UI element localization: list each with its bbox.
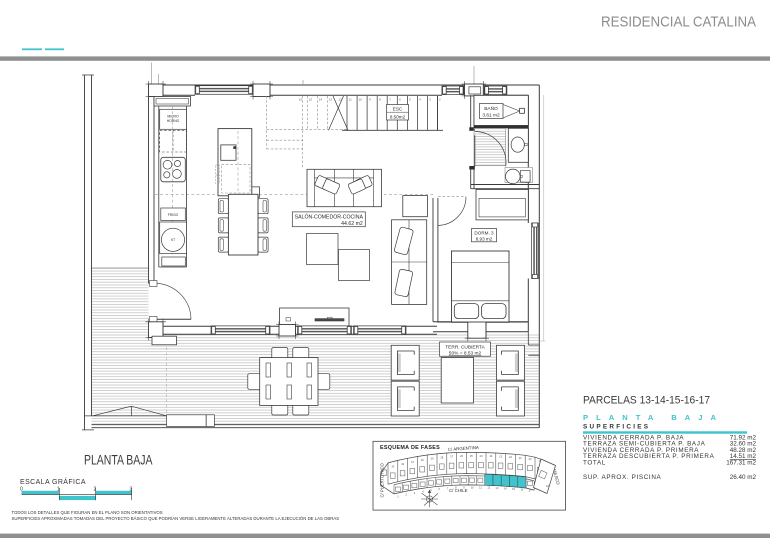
svg-text:FRIGO: FRIGO xyxy=(168,213,179,217)
svg-text:C/ CHILE: C/ CHILE xyxy=(449,488,468,493)
svg-text:8.50m2: 8.50m2 xyxy=(390,114,406,119)
svg-text:2: 2 xyxy=(439,98,441,102)
svg-text:TERR. CUBIERTA: TERR. CUBIERTA xyxy=(445,344,485,350)
svg-text:8.93 m2: 8.93 m2 xyxy=(476,236,493,241)
svg-text:SALÓN-COMEDOR-COCINA: SALÓN-COMEDOR-COCINA xyxy=(295,214,364,221)
svg-text:9: 9 xyxy=(369,98,371,102)
svg-text:PARCELAS 13-14-15-16-17: PARCELAS 13-14-15-16-17 xyxy=(583,395,710,407)
svg-text:16: 16 xyxy=(299,98,303,102)
svg-text:5: 5 xyxy=(409,98,411,102)
svg-text:10: 10 xyxy=(359,98,363,102)
svg-text:167.31 m2: 167.31 m2 xyxy=(726,460,756,467)
svg-text:3.61 m2: 3.61 m2 xyxy=(482,113,500,119)
svg-text:26.40 m2: 26.40 m2 xyxy=(730,474,757,481)
svg-text:50% = 8.53 m2: 50% = 8.53 m2 xyxy=(449,350,482,356)
svg-text:RESIDENCIAL CATALINA: RESIDENCIAL CATALINA xyxy=(601,14,757,31)
svg-text:4: 4 xyxy=(419,98,421,102)
svg-text:SUPERFICIES APROXIMADAS TOMADA: SUPERFICIES APROXIMADAS TOMADAS DEL PROY… xyxy=(12,516,340,521)
svg-text:12: 12 xyxy=(339,98,343,102)
svg-text:ESC: ESC xyxy=(393,107,403,112)
svg-text:ESCALA GRÁFICA: ESCALA GRÁFICA xyxy=(20,477,86,486)
svg-text:TOTAL: TOTAL xyxy=(583,460,606,467)
svg-text:KT: KT xyxy=(171,238,175,242)
svg-text:15: 15 xyxy=(309,98,313,102)
svg-text:PLANTA BAJA: PLANTA BAJA xyxy=(583,413,717,422)
svg-text:3: 3 xyxy=(429,98,431,102)
svg-text:11: 11 xyxy=(349,98,352,102)
svg-text:7: 7 xyxy=(389,98,391,102)
svg-text:8: 8 xyxy=(379,98,381,102)
svg-text:6: 6 xyxy=(399,98,401,102)
svg-text:PLANTA BAJA: PLANTA BAJA xyxy=(84,452,153,468)
svg-text:DORM. 3: DORM. 3 xyxy=(474,231,494,236)
svg-text:HORNO: HORNO xyxy=(167,119,180,123)
svg-text:44.62 m2: 44.62 m2 xyxy=(341,221,363,227)
svg-text:ESQUEMA DE FASES: ESQUEMA DE FASES xyxy=(380,445,440,451)
svg-text:SUPERFICIES: SUPERFICIES xyxy=(583,424,649,431)
svg-text:13: 13 xyxy=(329,98,333,102)
svg-text:TODOS LOS DETALLES QUE FIGURAN: TODOS LOS DETALLES QUE FIGURAN EN EL PLA… xyxy=(12,510,163,515)
svg-text:14: 14 xyxy=(319,98,323,102)
svg-text:SUP. APROX. PISCINA: SUP. APROX. PISCINA xyxy=(583,474,662,481)
svg-text:BAÑO: BAÑO xyxy=(484,105,498,112)
